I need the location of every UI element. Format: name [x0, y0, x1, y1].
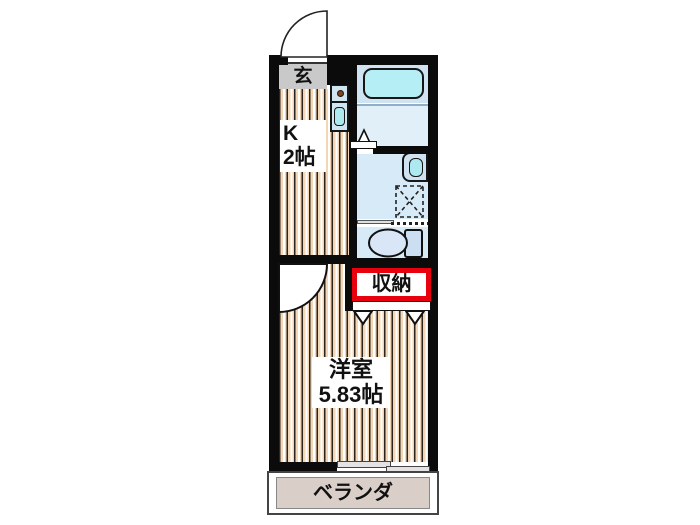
wall-kitchen-bath — [349, 55, 357, 268]
bathtub — [363, 68, 424, 99]
washbasin-bowl — [409, 158, 423, 177]
kitchen-size-label: 2帖 — [283, 146, 326, 170]
storage-box: 収納 — [352, 268, 431, 301]
storage-label: 収納 — [372, 273, 412, 295]
floor-plan: 玄 — [0, 0, 700, 525]
stove-burner-icon — [337, 90, 344, 97]
closet-door-triangle-right-icon — [404, 310, 426, 326]
wall-toilet-bottom — [349, 258, 438, 268]
balcony-area: ベランダ — [276, 477, 430, 509]
toilet-icon — [357, 226, 427, 260]
entrance-door-arc-icon — [275, 5, 335, 61]
bath-door-bar — [350, 141, 377, 149]
kitchen-label-box: K 2帖 — [280, 120, 326, 172]
kitchen-sink — [334, 107, 345, 126]
entrance-area: 玄 — [279, 62, 327, 89]
room-door-arc-icon — [277, 262, 329, 314]
storage-box-inner: 収納 — [357, 273, 426, 296]
wall-bath-washroom — [373, 146, 428, 154]
sliding-door-panel-right — [391, 222, 428, 225]
balcony-label: ベランダ — [313, 482, 393, 504]
western-room-label: 洋室 — [329, 358, 373, 383]
western-room-size-label: 5.83帖 — [319, 383, 384, 408]
kitchen-unit-divider — [332, 101, 347, 103]
western-room-label-box: 洋室 5.83帖 — [312, 357, 390, 408]
sliding-door-panel-left — [357, 220, 394, 224]
closet-door-triangle-left-icon — [352, 310, 374, 326]
washing-machine-pan-icon — [394, 184, 426, 220]
entrance-label: 玄 — [293, 66, 312, 87]
kitchen-label: K — [283, 122, 326, 146]
sliding-window-left — [337, 461, 391, 468]
kitchen-unit — [330, 84, 349, 132]
washbasin — [402, 152, 428, 182]
